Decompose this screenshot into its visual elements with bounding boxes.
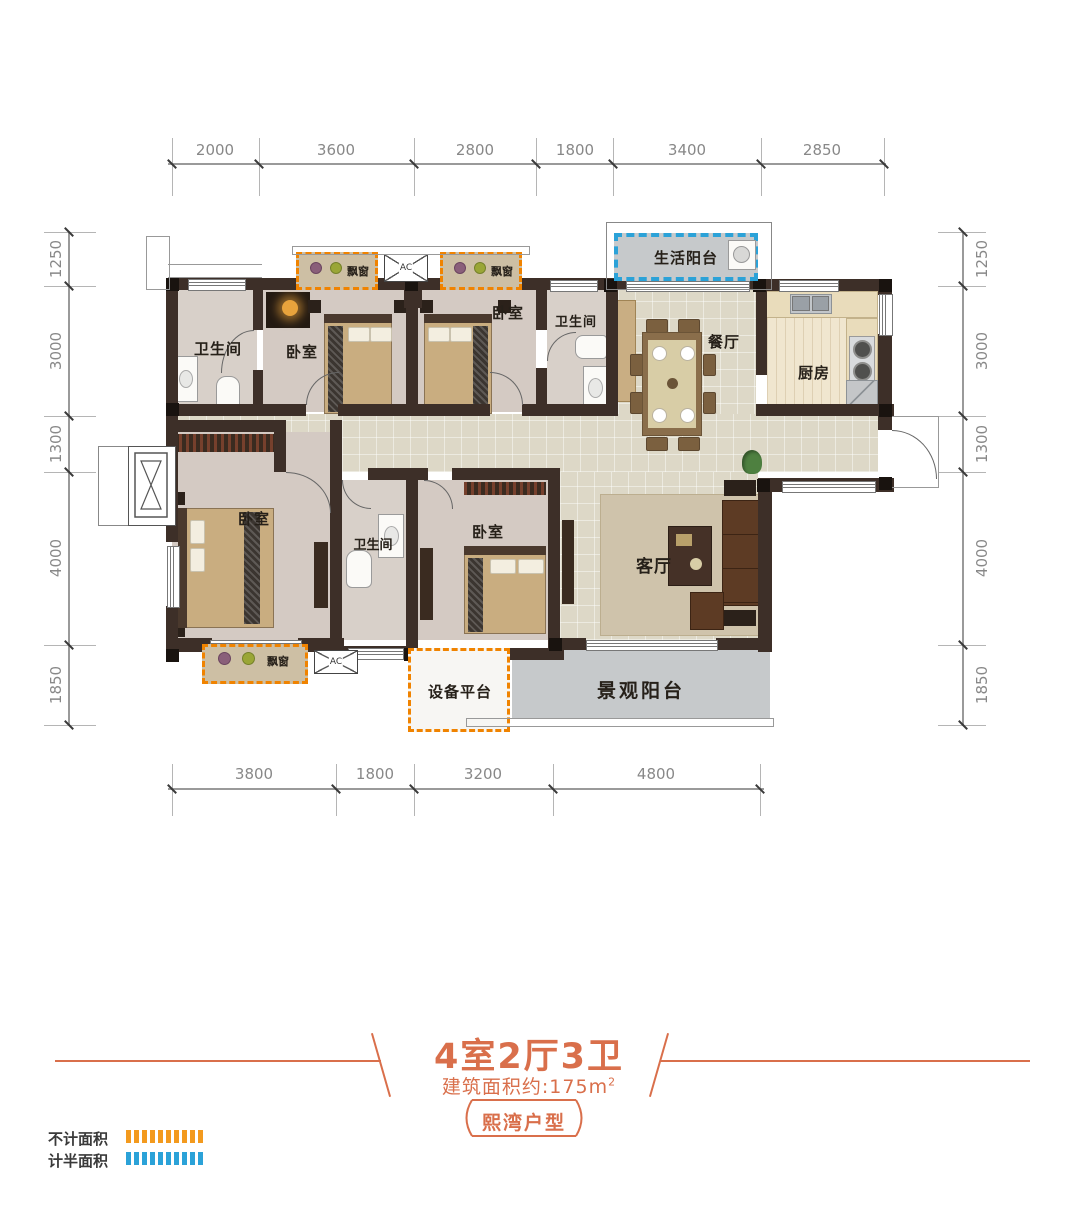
chair bbox=[703, 354, 716, 376]
dim-value: 3000 bbox=[974, 316, 990, 386]
title-rule-left bbox=[55, 1060, 381, 1062]
legend-swatch-no-area bbox=[126, 1130, 206, 1143]
floor-plan-page: 2000 3600 2800 1800 3400 2850 3800 1800 … bbox=[0, 0, 1079, 1225]
wall bbox=[606, 279, 618, 416]
dim-value: 4000 bbox=[48, 523, 64, 593]
dim-value: 1800 bbox=[540, 142, 610, 158]
dim-value: 2000 bbox=[180, 142, 250, 158]
wall bbox=[253, 288, 263, 330]
sink bbox=[179, 370, 193, 388]
column bbox=[166, 649, 179, 662]
sofa bbox=[722, 500, 762, 606]
pillow bbox=[370, 327, 392, 342]
room-label-bathroom: 卫生间 bbox=[344, 534, 402, 553]
dim-value: 3800 bbox=[219, 766, 289, 782]
dim-line bbox=[68, 232, 70, 725]
area-text: 建筑面积约:175m2 bbox=[398, 1072, 660, 1099]
wall bbox=[330, 420, 342, 652]
dim-line bbox=[962, 232, 964, 725]
ac-platform: AC bbox=[384, 254, 428, 282]
plant-icon bbox=[242, 652, 255, 665]
pillow bbox=[450, 327, 472, 342]
room-label-bay-window: 飘窗 bbox=[344, 263, 372, 279]
plate bbox=[680, 346, 695, 361]
wall bbox=[522, 404, 618, 416]
plate bbox=[652, 346, 667, 361]
wall bbox=[548, 468, 560, 652]
chair bbox=[646, 319, 668, 333]
dim-value: 3000 bbox=[48, 316, 64, 386]
burner bbox=[853, 362, 872, 381]
sink-basin bbox=[792, 296, 810, 311]
legend-label-half-area: 计半面积 bbox=[48, 1150, 108, 1171]
bed-runner bbox=[468, 558, 483, 632]
centerpiece bbox=[667, 378, 678, 389]
elevator-icon bbox=[129, 447, 173, 523]
bed-runner bbox=[473, 326, 488, 412]
window bbox=[167, 546, 180, 608]
dim-value: 3200 bbox=[448, 766, 518, 782]
room-label-dining: 餐厅 bbox=[702, 331, 746, 352]
title-slash-left bbox=[371, 1033, 391, 1097]
dim-value: 1850 bbox=[48, 650, 64, 720]
pillow bbox=[518, 559, 544, 574]
column bbox=[879, 477, 892, 490]
column bbox=[879, 404, 892, 417]
title-rule-right bbox=[660, 1060, 1030, 1062]
wardrobe bbox=[464, 482, 546, 495]
column bbox=[549, 638, 562, 651]
column bbox=[879, 279, 892, 292]
pillow bbox=[490, 559, 516, 574]
wall bbox=[536, 288, 547, 330]
table-decor bbox=[690, 558, 702, 570]
area-value: 建筑面积约:175m bbox=[442, 1076, 608, 1098]
dim-value: 2850 bbox=[787, 142, 857, 158]
wall bbox=[452, 468, 560, 480]
wall bbox=[166, 404, 306, 416]
plant-icon bbox=[310, 262, 322, 274]
dim-value: 1300 bbox=[48, 409, 64, 479]
wall bbox=[274, 420, 286, 472]
room-label-living: 客厅 bbox=[630, 552, 678, 577]
room-label-kitchen: 厨房 bbox=[792, 362, 836, 383]
chair bbox=[678, 437, 700, 451]
dim-value: 1300 bbox=[974, 409, 990, 479]
balcony-edge bbox=[466, 718, 774, 727]
pillow bbox=[428, 327, 450, 342]
chair bbox=[678, 319, 700, 333]
window bbox=[782, 481, 876, 493]
chair bbox=[646, 437, 668, 451]
room-label-bay-window: 飘窗 bbox=[264, 653, 292, 669]
dresser bbox=[420, 548, 433, 620]
bed-headboard bbox=[324, 314, 392, 323]
sink-basin bbox=[812, 296, 829, 311]
room-label-bedroom: 卧室 bbox=[466, 521, 510, 542]
window bbox=[879, 294, 893, 336]
room-label-bathroom: 卫生间 bbox=[548, 311, 604, 330]
bed-headboard bbox=[424, 314, 492, 323]
plant-icon bbox=[474, 262, 486, 274]
wall bbox=[338, 404, 490, 416]
burner bbox=[853, 340, 872, 359]
sink bbox=[588, 378, 603, 398]
dim-line bbox=[168, 163, 886, 165]
pillow bbox=[348, 327, 370, 342]
dim-line bbox=[168, 788, 764, 790]
dim-value: 2800 bbox=[440, 142, 510, 158]
wall bbox=[406, 468, 418, 660]
pillow bbox=[190, 520, 205, 544]
lamp-icon bbox=[282, 300, 298, 316]
sideboard bbox=[616, 300, 636, 402]
pillow bbox=[190, 548, 205, 572]
dim-value: 1250 bbox=[974, 224, 990, 294]
wall bbox=[756, 404, 894, 416]
nightstand bbox=[308, 300, 321, 313]
dim-value: 1250 bbox=[48, 224, 64, 294]
ac-label: AC bbox=[399, 263, 413, 273]
lobby bbox=[98, 446, 130, 526]
dim-value: 1850 bbox=[974, 650, 990, 720]
elevator bbox=[128, 446, 176, 526]
legend-swatch-half-area bbox=[126, 1152, 206, 1165]
room-label-life-balcony: 生活阳台 bbox=[648, 247, 724, 268]
room-label-bedroom: 卧室 bbox=[486, 302, 530, 323]
wall bbox=[758, 486, 772, 652]
dim-value: 3400 bbox=[652, 142, 722, 158]
unit-name: 熙湾户型 bbox=[466, 1108, 582, 1135]
column bbox=[757, 479, 770, 492]
end-table bbox=[724, 610, 756, 626]
room-label-equipment: 设备平台 bbox=[424, 681, 496, 702]
room-label-bathroom: 卫生间 bbox=[186, 338, 250, 359]
column bbox=[166, 403, 179, 416]
wall bbox=[166, 420, 286, 432]
window bbox=[779, 280, 839, 292]
toilet bbox=[575, 335, 607, 359]
chair bbox=[703, 392, 716, 414]
plate bbox=[680, 408, 695, 423]
legend-label-no-area: 不计面积 bbox=[48, 1128, 108, 1149]
window bbox=[586, 640, 718, 651]
tv-cabinet bbox=[562, 520, 574, 604]
room-label-bedroom: 卧室 bbox=[280, 341, 324, 362]
wall bbox=[418, 468, 428, 480]
room-label-bedroom: 卧室 bbox=[232, 508, 276, 529]
exterior-ledge bbox=[146, 236, 170, 290]
area-superscript: 2 bbox=[608, 1076, 616, 1089]
entry-landing bbox=[892, 416, 939, 488]
bed-headboard bbox=[464, 546, 546, 555]
dresser bbox=[314, 542, 328, 608]
window bbox=[188, 279, 246, 291]
ac-platform: AC bbox=[314, 650, 358, 674]
wall bbox=[406, 278, 418, 416]
wall bbox=[756, 290, 767, 375]
dim-value: 4000 bbox=[974, 523, 990, 593]
dim-value: 1800 bbox=[340, 766, 410, 782]
plant-icon bbox=[742, 450, 762, 474]
table-decor bbox=[676, 534, 692, 546]
plant-icon bbox=[330, 262, 342, 274]
plant-icon bbox=[218, 652, 231, 665]
fridge bbox=[846, 380, 878, 405]
armchair bbox=[690, 592, 724, 630]
exterior-ledge bbox=[168, 264, 262, 278]
room-label-bay-window: 飘窗 bbox=[488, 263, 516, 279]
toilet bbox=[346, 550, 372, 588]
dim-value: 3600 bbox=[301, 142, 371, 158]
exterior-ledge bbox=[292, 246, 530, 255]
plate bbox=[652, 408, 667, 423]
wardrobe bbox=[172, 434, 282, 452]
room-label-view-balcony: 景观阳台 bbox=[586, 676, 696, 703]
bay-window bbox=[202, 644, 308, 684]
end-table bbox=[724, 480, 756, 496]
dim-value: 4800 bbox=[621, 766, 691, 782]
plant-icon bbox=[454, 262, 466, 274]
window bbox=[550, 280, 598, 292]
ac-label: AC bbox=[329, 657, 343, 667]
